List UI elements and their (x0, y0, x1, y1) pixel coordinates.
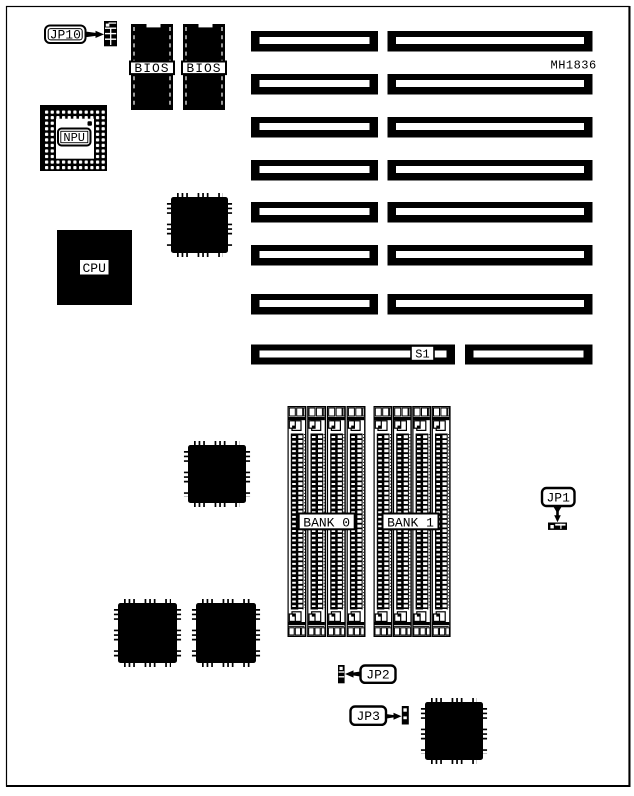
svg-text:JP2: JP2 (366, 668, 389, 683)
svg-text:BANK 0: BANK 0 (303, 515, 350, 530)
svg-text:BANK 1: BANK 1 (387, 515, 434, 530)
svg-text:JP3: JP3 (356, 709, 379, 724)
svg-text:MH1836: MH1836 (551, 59, 597, 73)
svg-text:BIOS: BIOS (134, 61, 169, 76)
svg-text:JP1: JP1 (546, 491, 570, 506)
svg-text:S1: S1 (415, 348, 429, 362)
svg-text:JP10: JP10 (50, 28, 81, 43)
svg-text:CPU: CPU (82, 261, 105, 276)
svg-text:BIOS: BIOS (186, 61, 221, 76)
svg-text:NPU: NPU (63, 131, 85, 145)
